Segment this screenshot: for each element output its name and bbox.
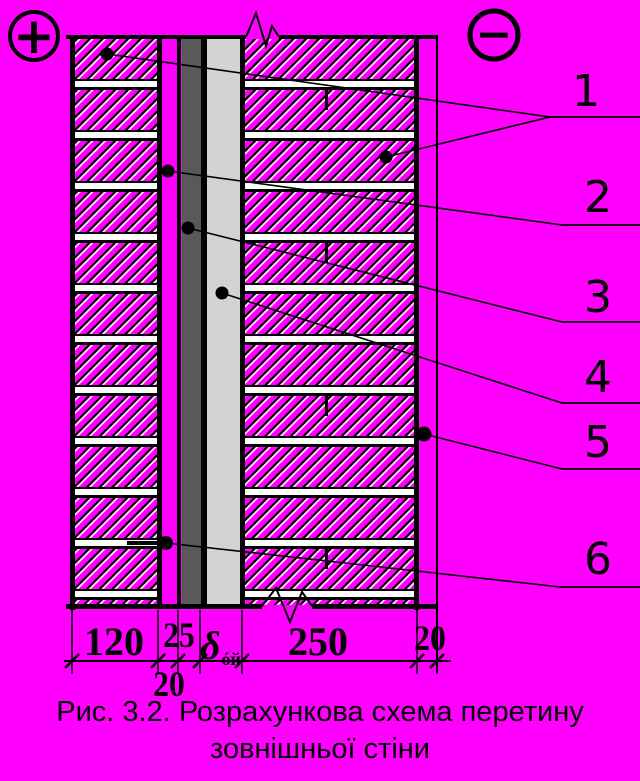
- delta-subscript: óй: [222, 649, 241, 669]
- outer-brick-layer: [75, 39, 157, 605]
- delta-symbol: δ: [200, 623, 221, 668]
- caption-line-2: зовнішньої стіни: [0, 731, 640, 768]
- figure-wall-cross-section: + − 1 2 3 4 5 6 120 25 20 250 20 δóй Рис…: [0, 0, 640, 781]
- dim-250: 250: [278, 622, 358, 662]
- dim-25: 25: [153, 617, 204, 653]
- callout-3: 3: [576, 276, 620, 320]
- figure-caption: Рис. 3.2. Розрахункова схема перетину зо…: [0, 694, 640, 768]
- insulation-layer: [207, 39, 240, 605]
- dim-delta: δóй: [200, 626, 241, 668]
- dim-120: 120: [74, 622, 154, 662]
- callout-6: 6: [576, 538, 620, 582]
- minus-terminal-sign: −: [470, 10, 518, 62]
- callout-1: 1: [564, 70, 608, 114]
- inner-masonry-layer: [245, 39, 415, 605]
- callout-5: 5: [576, 421, 620, 465]
- callout-2: 2: [576, 176, 620, 220]
- dark-board-layer: [182, 39, 201, 605]
- caption-line-1: Рис. 3.2. Розрахункова схема перетину: [0, 694, 640, 731]
- plus-terminal-sign: +: [10, 11, 58, 63]
- plaster-face-line: [436, 35, 438, 673]
- callout-4: 4: [576, 356, 620, 400]
- dim-20-right: 20: [404, 620, 455, 656]
